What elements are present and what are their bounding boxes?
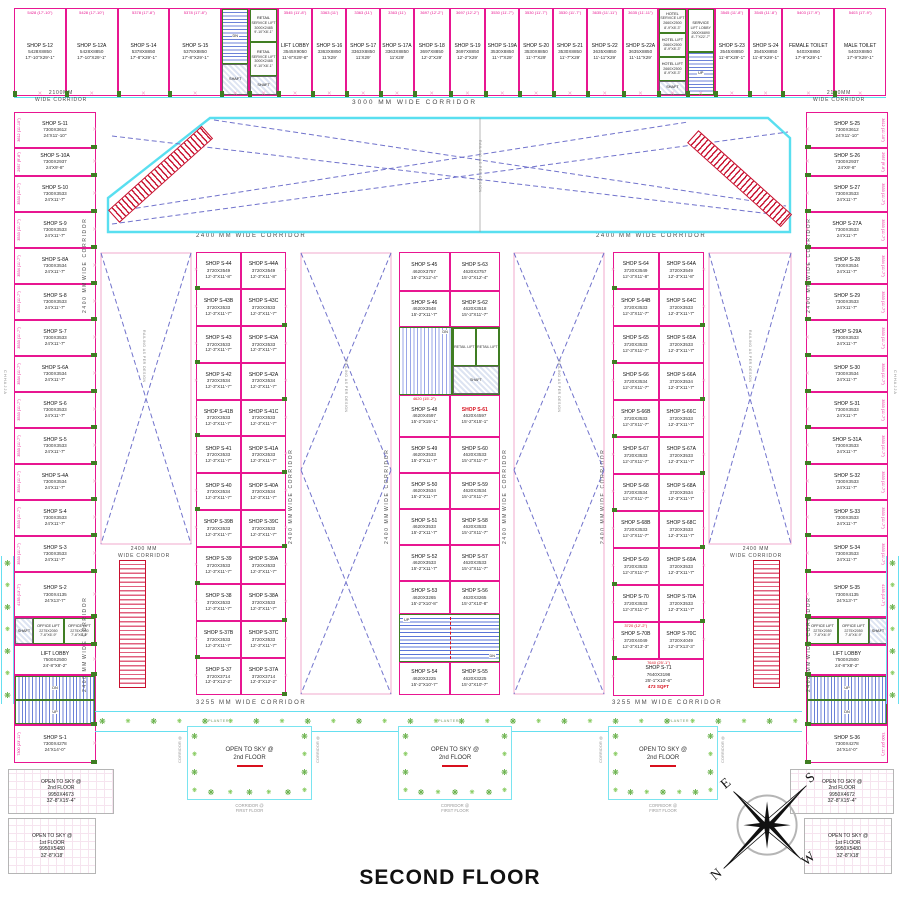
retail-service-lifts: RETAILSERVICE LIFT3000X24859'-10"X8'-1"R…	[249, 8, 277, 96]
corridor-first-floor-label: CORRIDOR @FIRST FLOOR	[398, 803, 512, 814]
staircase-icon: DN	[399, 327, 452, 395]
shop-s41c: SHOP S-41C3720X353312'-3"X11'-7"	[241, 400, 286, 437]
shop-s22: 3635 (11'-11")SHOP S-223635X885011'-11"X…	[587, 8, 623, 96]
shop-s31: 3533 (11'-7")SHOP S-317300X353324'X11'-7…	[806, 392, 888, 428]
hotel-lifts: HOTELSERVICE LIFT2660X25008'-9"X8'-3"HOT…	[658, 8, 686, 96]
shop-s67: SHOP S-673720X353312'-3"X11'-7"	[613, 437, 659, 474]
shop-s19a: 3530 (11'-7")SHOP S-19A3530X885011'-7"X2…	[485, 8, 519, 96]
plant-icon: ❋	[99, 718, 106, 726]
shop-s31a: 3533 (11'-7")SHOP S-31A7300X353324'X11'-…	[806, 428, 888, 464]
shop-s70: SHOP S-703720X353312'-3"X11'-7"	[613, 585, 659, 622]
shop-s6: 3533 (11'-7")SHOP S-67300X353324'X11'-7"	[14, 392, 96, 428]
planter-strip: ❋❋❋❋❋❋❋	[1, 556, 14, 704]
shop-s18: 3697 (12'-2")SHOP S-183697X885012'-2"X29…	[414, 8, 450, 96]
plant-icon: ❋	[677, 790, 682, 796]
corridor-label-2400-bottom-right: 2400 MMWIDE CORRIDOR	[710, 546, 802, 560]
escalator-icon	[753, 560, 780, 688]
service-lift-lobby: SERVICELIFT LOBBY2600X68908'-7"X22'-7"UP	[687, 8, 715, 96]
railing-label: RAILING AS PER DESIGN	[557, 360, 561, 413]
shop-s34: 3533 (11'-7")SHOP S-347300X353324'X11'-7…	[806, 536, 888, 572]
plant-icon: ❋	[402, 769, 409, 777]
shop-s69a: SHOP S-69A3720X353312'-3"X11'-7"	[659, 548, 705, 585]
plant-icon: ❋	[285, 789, 292, 797]
shop-s17: 3363 (11')SHOP S-173363X885011'X29'	[346, 8, 380, 96]
compass-e: E	[717, 775, 733, 792]
plant-icon: ❋	[561, 718, 568, 726]
shop-s39c: SHOP S-39C3720X353312'-3"X11'-7"	[241, 510, 286, 547]
escalator-icon	[119, 560, 146, 688]
right-shop-column: 3612 (11'-10")SHOP S-257300X361224'X11'-…	[806, 112, 888, 763]
planter-column: ❋❋❋❋	[399, 727, 412, 799]
plant-icon: ❋	[469, 790, 474, 796]
corridor-label-3255-left: 3255 MM WIDE CORRIDOR	[196, 700, 306, 706]
plant-icon: ❋	[889, 604, 896, 612]
plant-icon: ❋	[587, 719, 592, 725]
plant-icon: ❋	[301, 733, 308, 741]
plant-icon: ❋	[4, 604, 11, 612]
shop-s43: SHOP S-433720X353312'-3"X11'-7"	[196, 326, 241, 363]
shop-s11: 3612 (11'-10")SHOP S-117300X361224'X11'-…	[14, 112, 96, 148]
plant-icon: ❋	[613, 788, 618, 794]
chhajja-label-left: CHHAJJA	[3, 370, 8, 395]
corridor-label-vertical: 2400 MMWIDE CORRIDOR	[82, 148, 88, 313]
shop-s54: SHOP S-544620X322515'-2"X10'-7"	[399, 662, 450, 695]
railing-label: RAILING AS PER DESIGN	[344, 360, 348, 413]
planter-label: PLANTER	[438, 719, 459, 723]
plant-icon: ❋	[502, 788, 507, 794]
shop-s14: 5378 (17'-8")SHOP S-145378X885017'-8"X29…	[118, 8, 170, 96]
open-to-sky-2nd-mid: OPEN TO SKY @2nd FLOOR	[412, 727, 498, 787]
shop-s28: 3534 (11'-7")SHOP S-287300X353424'X11'-7…	[806, 248, 888, 284]
shop-s62: SHOP S-624620X351815'-2"X11'-7"	[450, 291, 501, 327]
shop-s40a: SHOP S-40A3720X353412'-3"X11'-7"	[241, 473, 286, 510]
shop-s68c: SHOP S-68C3720X353312'-3"X11'-7"	[659, 511, 705, 548]
plant-icon: ❋	[486, 789, 493, 797]
shop-s41b: SHOP S-41B3720X353312'-3"X11'-7"	[196, 400, 241, 437]
inner-center-shop-block: SHOP S-454620X375715'-2"X12'-4"SHOP S-63…	[399, 252, 500, 695]
shop-s44: SHOP S-443720X354912'-3"X11'-8"	[196, 252, 241, 289]
planter-column: ❋❋❋❋	[298, 727, 311, 799]
shop-s37c: SHOP S-37C3720X353312'-3"X11'-7"	[241, 621, 286, 658]
shop-s57: SHOP S-574620X353315'-2"X11'-7"	[450, 545, 501, 581]
open-to-sky-2nd-mid: OPEN TO SKY @2nd FLOOR	[622, 727, 704, 787]
shop-s66c: SHOP S-66C3720X353312'-3"X11'-7"	[659, 400, 705, 437]
shop-s37: SHOP S-373720X371412'-3"X12'-2"	[196, 658, 241, 695]
plant-icon: ❋	[304, 718, 311, 726]
shop-s41a: SHOP S-41A3720X353312'-3"X11'-7"	[241, 436, 286, 473]
corridor-label-2400-bottom-left: 2400 MMWIDE CORRIDOR	[98, 546, 190, 560]
chhajja-label-right: CHHAJJA	[893, 370, 898, 395]
plant-icon: ❋	[435, 790, 440, 796]
plant-icon: ❋	[627, 789, 634, 797]
void-mid-left	[300, 252, 392, 695]
shop-s29: 3533 (11'-7")SHOP S-297300X353324'X11'-7…	[806, 284, 888, 320]
plant-icon: ❋	[402, 733, 409, 741]
planter-column: ❋❋❋❋	[609, 727, 622, 799]
shop-s37a: SHOP S-37A3720X371412'-3"X12'-2"	[241, 658, 286, 695]
shop-s4: 3533 (11'-7")SHOP S-47300X353324'X11'-7"	[14, 500, 96, 536]
plant-icon: ❋	[208, 789, 215, 797]
plant-icon: ❋	[660, 789, 667, 797]
shop-s63: SHOP S-634620X375715'-2"X12'-4"	[450, 252, 501, 291]
plant-icon: ❋	[613, 752, 618, 758]
plant-icon: ❋	[5, 627, 10, 633]
plant-icon: ❋	[177, 719, 182, 725]
plant-icon: ❋	[5, 583, 10, 589]
compass-s: S	[802, 769, 818, 785]
plant-icon: ❋	[612, 769, 619, 777]
shop-s20: 3530 (11'-7")SHOP S-203530X885011'-7"X29…	[519, 8, 553, 96]
planter-column: ❋❋❋❋	[188, 727, 201, 799]
corridor-label-2100-right: 2100MMWIDE CORRIDOR	[794, 90, 884, 104]
center-mid-shops: 4620 (15'-2")SHOP S-484620X459715'-2"X15…	[399, 395, 500, 614]
female-toilet: 5403 (17'-9")FEMALE TOILET5403X885017'-9…	[782, 8, 834, 96]
shop-s48: 4620 (15'-2")SHOP S-484620X459715'-2"X15…	[399, 395, 450, 437]
shop-s32: 3533 (11'-7")SHOP S-327300X353324'X11'-7…	[806, 464, 888, 500]
plant-icon: ❋	[191, 733, 198, 741]
shop-s70a: SHOP S-70A3720X353312'-3"X11'-7"	[659, 585, 705, 622]
plant-icon: ❋	[644, 790, 649, 796]
planter-label: PLANTER	[208, 719, 229, 723]
plant-icon: ❋	[192, 788, 197, 794]
shop-s39: SHOP S-393720X353312'-3"X11'-7"	[196, 547, 241, 584]
shop-s30: 3534 (11'-7")SHOP S-307300X353424'X11'-7…	[806, 356, 888, 392]
corridor-label-3000: 3000 MM WIDE CORRIDOR	[352, 99, 477, 106]
shop-s68: SHOP S-683720X353412'-3"X11'-7"	[613, 474, 659, 511]
shop-s58: SHOP S-584620X353315'-2"X11'-7"	[450, 509, 501, 545]
plant-icon: ❋	[403, 752, 408, 758]
plant-icon: ❋	[890, 583, 895, 589]
planter-row: ❋❋❋❋❋	[622, 787, 704, 799]
shop-s38a: SHOP S-38A3720X353312'-3"X11'-7"	[241, 584, 286, 621]
shop-s56: SHOP S-564620X326515'-2"X10'-8"	[450, 581, 501, 614]
shop-s25: 3612 (11'-10")SHOP S-257300X361224'X11'-…	[806, 112, 888, 148]
plant-icon: ❋	[5, 671, 10, 677]
shop-s43c: SHOP S-43C3720X353312'-3"X11'-7"	[241, 289, 286, 326]
plant-icon: ❋	[707, 733, 714, 741]
shop-s53: SHOP S-534620X326515'-2"X10'-8"	[399, 581, 450, 614]
plant-icon: ❋	[690, 719, 695, 725]
shop-s66: SHOP S-663720X353412'-3"X11'-7"	[613, 363, 659, 400]
inner-right-shop-block: SHOP S-643720X354912'-3"X11'-8"SHOP S-64…	[613, 252, 704, 695]
open-to-sky-1st-left: OPEN TO SKY @1st FLOOR9950X548032'-8"X18…	[9, 819, 95, 873]
shop-s61: SHOP S-614620X459715'-2"X15'-1"	[450, 395, 501, 437]
plant-icon: ❋	[4, 648, 11, 656]
shop-s70b: 3720 (12'-2")SHOP S-70B3720X404912'-3"X1…	[613, 622, 659, 659]
plant-icon: ❋	[192, 752, 197, 758]
central-staircase-lifts: DN RETAIL LIFT RETAIL LIFT SHAFT	[399, 327, 500, 395]
shop-s21: 3530 (11'-7")SHOP S-213530X885011'-7"X29…	[553, 8, 587, 96]
shop-s45: SHOP S-454620X375715'-2"X12'-4"	[399, 252, 450, 291]
plant-icon: ❋	[4, 560, 11, 568]
shop-s27a: 3533 (11'-7")SHOP S-27A7300X353324'X11'-…	[806, 212, 888, 248]
railing-label: RAILING AS PER DESIGN	[748, 330, 752, 383]
shop-s51: SHOP S-514620X353315'-2"X11'-7"	[399, 509, 450, 545]
void-mid-right	[513, 252, 605, 695]
shop-s39a: SHOP S-39A3720X353312'-3"X11'-7"	[241, 547, 286, 584]
plant-icon: ❋	[301, 769, 308, 777]
center-bottom-shops: SHOP S-544620X322515'-2"X10'-7"SHOP S-55…	[399, 662, 500, 695]
plant-icon: ❋	[639, 719, 644, 725]
central-escalator-icon: UP DN	[399, 614, 500, 662]
plant-icon: ❋	[266, 790, 271, 796]
plant-icon: ❋	[228, 790, 233, 796]
shop-s4a: 3534 (11'-7")SHOP S-4A7300X353424'X11'-7…	[14, 464, 96, 500]
shop-s36: 7300 (23'-11")SHOP S-367300X427824'X14'-…	[806, 725, 888, 763]
shop-s17a: 3363 (11')SHOP S-17A3363X885011'X29'	[380, 8, 414, 96]
shop-s43b: SHOP S-43B3720X353312'-3"X11'-7"	[196, 289, 241, 326]
railing-label: RAILING AS PER DESIGN	[478, 140, 482, 193]
plant-icon: ❋	[356, 718, 363, 726]
open-to-sky-2nd-mid: OPEN TO SKY @2nd FLOOR	[201, 727, 298, 787]
shop-s6a: 3534 (11'-7")SHOP S-6A7300X353424'X11'-7…	[14, 356, 96, 392]
shop-s43a: SHOP S-43A3720X353312'-3"X11'-7"	[241, 326, 286, 363]
plant-icon: ❋	[890, 627, 895, 633]
corridor-label-vertical: 2400 MMWIDE CORRIDOR	[502, 406, 508, 544]
plant-icon: ❋	[302, 788, 307, 794]
shop-s12: 5428 (17'-10")SHOP S-125428X885017'-10"X…	[14, 8, 66, 96]
corridor-label-vertical: 2400 MMWIDE CORRIDOR	[288, 406, 294, 544]
planter-column: ❋❋❋❋	[498, 727, 511, 799]
shop-s12a: 5428 (17'-10")SHOP S-12A5428X885017'-10"…	[66, 8, 118, 96]
plant-icon: ❋	[889, 692, 896, 700]
shop-s42: SHOP S-423720X353412'-3"X11'-7"	[196, 363, 241, 400]
plant-icon: ❋	[4, 692, 11, 700]
plant-icon: ❋	[502, 752, 507, 758]
shop-s64a: SHOP S-64A3720X354912'-3"X11'-8"	[659, 252, 705, 289]
office-lifts: OFFICE LIFT2275X20507'-6"X6'-9"OFFICE LI…	[806, 617, 888, 645]
plant-icon: ❋	[501, 769, 508, 777]
plant-icon: ❋	[793, 719, 798, 725]
plant-icon: ❋	[302, 752, 307, 758]
plant-icon: ❋	[331, 719, 336, 725]
shop-s33: 3533 (11'-7")SHOP S-337300X353324'X11'-7…	[806, 500, 888, 536]
plant-icon: ❋	[536, 719, 541, 725]
plant-icon: ❋	[458, 718, 465, 726]
shop-s37b: SHOP S-37B3720X353312'-3"X11'-7"	[196, 621, 241, 658]
plant-icon: ❋	[126, 719, 131, 725]
void-right	[708, 252, 792, 545]
shop-s46: SHOP S-464620X354815'-2"X11'-7"	[399, 291, 450, 327]
shop-s29a: 3533 (11'-7")SHOP S-29A7300X353324'X11'-…	[806, 320, 888, 356]
plant-icon: ❋	[889, 648, 896, 656]
shop-s64b: SHOP S-64B3720X353312'-3"X11'-7"	[613, 289, 659, 326]
shop-s65: SHOP S-653720X353312'-3"X11'-7"	[613, 326, 659, 363]
corridor-first-floor-label: CORRIDOR @	[599, 736, 604, 763]
planter-strip: ❋❋❋❋❋❋❋	[886, 556, 899, 704]
planter-label: PLANTER	[668, 719, 689, 723]
plant-icon: ❋	[889, 560, 896, 568]
shop-s41: SHOP S-413720X353312'-3"X11'-7"	[196, 436, 241, 473]
retail-lift-bank: RETAIL LIFT RETAIL LIFT SHAFT	[452, 327, 500, 395]
shaft: SHAFT	[453, 366, 499, 394]
corridor-first-floor-label: CORRIDOR @	[316, 736, 321, 763]
shop-s65a: SHOP S-65A3720X353312'-3"X11'-7"	[659, 326, 705, 363]
shop-s42a: SHOP S-42A3720X353412'-3"X11'-7"	[241, 363, 286, 400]
shop-s49: SHOP S-494620X353315'-2"X11'-7"	[399, 437, 450, 473]
shop-s35: 4135 (13'-7")SHOP S-357300X413524'X13'-7…	[806, 572, 888, 617]
lift-lobby: LIFT LOBBY7500X250024'-8"X8'-2"	[806, 645, 888, 675]
plant-icon: ❋	[741, 719, 746, 725]
shop-s70c: SHOP S-70C3720X404912'-3"X13'-3"	[659, 622, 705, 659]
male-toilet: 5403 (17'-9")MALE TOILET5403X885017'-9"X…	[834, 8, 886, 96]
plant-icon: ❋	[253, 718, 260, 726]
center-top-shops: SHOP S-454620X375715'-2"X12'-4"SHOP S-63…	[399, 252, 500, 327]
plant-icon: ❋	[418, 789, 425, 797]
railing-label: RAILING AS PER DESIGN	[142, 330, 146, 383]
inner-left-shop-block: SHOP S-443720X354912'-3"X11'-8"SHOP S-44…	[196, 252, 286, 695]
open-to-sky-block: ❋❋❋❋ OPEN TO SKY @2nd FLOOR ❋❋❋❋❋ ❋❋❋❋	[187, 726, 312, 800]
corridor-label-vertical: 2400 MMWIDE CORRIDOR	[82, 572, 88, 692]
corridor-label-3255-right: 3255 MM WIDE CORRIDOR	[612, 700, 722, 706]
shop-s60: SHOP S-604620X353315'-2"X11'-7"	[450, 437, 501, 473]
shop-s68b: SHOP S-68B3720X353312'-3"X11'-7"	[613, 511, 659, 548]
shop-s66a: SHOP S-66A3720X353412'-3"X11'-7"	[659, 363, 705, 400]
shop-s1: 7300 (23'-11")SHOP S-17300X427824'X14'-0…	[14, 725, 96, 763]
planter-row: ❋❋❋❋❋	[201, 787, 298, 799]
open-to-sky-2nd-left: OPEN TO SKY @2nd FLOOR9950X467332'-8"X15…	[9, 770, 113, 813]
shop-s69: SHOP S-693720X353312'-3"X11'-7"	[613, 548, 659, 585]
shop-s27: 3533 (11'-7")SHOP S-277300X353324'X11'-7…	[806, 176, 888, 212]
staircase: UPDN	[806, 675, 888, 725]
shop-s55: SHOP S-554620X322515'-2"X10'-7"	[450, 662, 501, 695]
plant-icon: ❋	[382, 719, 387, 725]
plant-icon: ❋	[150, 718, 157, 726]
shop-s24: 3545 (11'-8")SHOP S-243545X885011'-8"X29…	[749, 8, 783, 96]
shop-s3: 3533 (11'-7")SHOP S-37300X353324'X11'-7"	[14, 536, 96, 572]
shop-s23: 3545 (11'-8")SHOP S-233545X885011'-8"X29…	[715, 8, 749, 96]
shop-s64: SHOP S-643720X354912'-3"X11'-8"	[613, 252, 659, 289]
corridor-label-2100-left: 2100MMWIDE CORRIDOR	[16, 90, 106, 104]
shop-s16: 3363 (11')SHOP S-163363X885011'X29'	[312, 8, 346, 96]
shop-s22a: 3635 (11'-11")SHOP S-22A3635X885011'-11"…	[623, 8, 659, 96]
shop-s59: SHOP S-594620X353415'-2"X11'-7"	[450, 473, 501, 509]
shop-s50: SHOP S-504620X353415'-2"X11'-7"	[399, 473, 450, 509]
staircase: DNSHAFT	[221, 8, 249, 96]
shop-s26: 2937 (9'-8")SHOP S-267300X293724'X9'-8"	[806, 148, 888, 176]
shop-s52: SHOP S-524620X353315'-2"X11'-7"	[399, 545, 450, 581]
lift-lobby: 3545 (11'-8")LIFT LOBBY3545X905011'-8"X2…	[278, 8, 313, 96]
plant-icon: ❋	[246, 789, 253, 797]
shop-s64c: SHOP S-64C3720X353312'-3"X11'-7"	[659, 289, 705, 326]
corridor-first-floor-label: CORRIDOR @	[721, 736, 726, 763]
plant-icon: ❋	[612, 733, 619, 741]
shop-s71: 7640 (25'-1")SHOP S-717640X319825'-1"X10…	[613, 659, 704, 696]
open-to-sky-block: ❋❋❋❋ OPEN TO SKY @2nd FLOOR ❋❋❋❋❋ ❋❋❋❋	[398, 726, 512, 800]
plant-icon: ❋	[407, 718, 414, 726]
shop-s68a: SHOP S-68A3720X353412'-3"X11'-7"	[659, 474, 705, 511]
plant-icon: ❋	[501, 733, 508, 741]
plant-icon: ❋	[403, 788, 408, 794]
plant-icon: ❋	[766, 718, 773, 726]
shop-s40: SHOP S-403720X353412'-3"X11'-7"	[196, 473, 241, 510]
top-shop-row: 5428 (17'-10")SHOP S-125428X885017'-10"X…	[14, 8, 886, 96]
plant-icon: ❋	[510, 718, 517, 726]
shop-s38: SHOP S-383720X353312'-3"X11'-7"	[196, 584, 241, 621]
planter-row: ❋❋❋❋❋	[412, 787, 498, 799]
void-left	[100, 252, 192, 545]
shop-s66b: SHOP S-66B3720X353312'-3"X11'-7"	[613, 400, 659, 437]
shop-s5: 3533 (11'-7")SHOP S-57300X353324'X11'-7"	[14, 428, 96, 464]
plant-icon: ❋	[191, 769, 198, 777]
open-to-sky-left-2nd: OPEN TO SKY @2nd FLOOR9950X467332'-8"X15…	[8, 769, 114, 814]
shop-s19: 3697 (12'-2")SHOP S-193697X885012'-2"X29…	[450, 8, 486, 96]
plant-icon: ❋	[708, 752, 713, 758]
retail-lift: RETAIL LIFT	[476, 328, 499, 366]
plant-icon: ❋	[485, 719, 490, 725]
shop-s39b: SHOP S-39B3720X353312'-3"X11'-7"	[196, 510, 241, 547]
shop-s7: 3533 (11'-7")SHOP S-77300X353324'X11'-7"	[14, 320, 96, 356]
shop-s44a: SHOP S-44A3720X354912'-3"X11'-8"	[241, 252, 286, 289]
plant-icon: ❋	[612, 718, 619, 726]
corridor-first-floor-label: CORRIDOR @	[178, 736, 183, 763]
shop-s15: 5378 (17'-8")SHOP S-155378X885017'-8"X29…	[169, 8, 221, 96]
shop-s67a: SHOP S-67A3720X353312'-3"X11'-7"	[659, 437, 705, 474]
plant-icon: ❋	[452, 789, 459, 797]
floor-title: SECOND FLOOR	[0, 866, 900, 890]
plant-icon: ❋	[890, 671, 895, 677]
retail-lift: RETAIL LIFT	[453, 328, 476, 366]
plant-icon: ❋	[715, 718, 722, 726]
floor-plan: 5428 (17'-10")SHOP S-125428X885017'-10"X…	[0, 0, 900, 900]
corridor-first-floor-label: CORRIDOR @FIRST FLOOR	[187, 803, 312, 814]
plant-icon: ❋	[279, 719, 284, 725]
